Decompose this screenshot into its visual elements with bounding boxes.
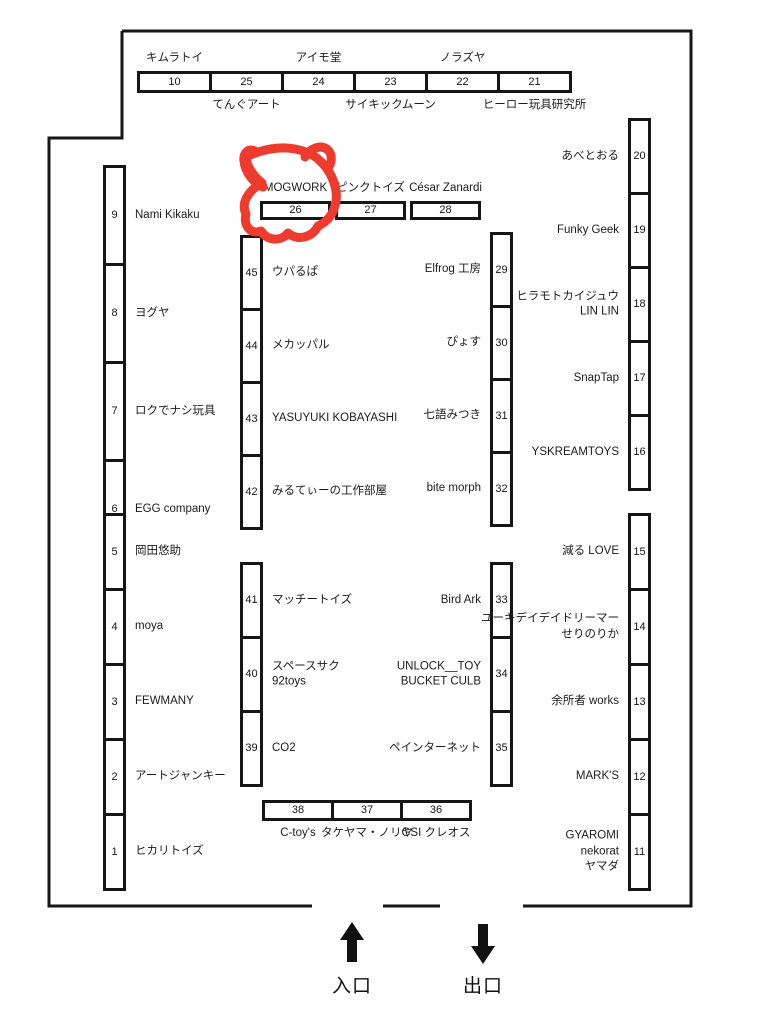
booth-10-box: 10 [137,71,212,93]
booth-13-box: 13 [628,663,651,741]
booth-21-label: ヒーロー玩具研究所 [483,98,587,114]
entrance-arrow-icon [340,922,364,962]
booth-44-box: 44 [240,308,263,384]
booth-cell-22: 22ノラズヤ [425,71,500,93]
booth-12-label: MARK'S [444,769,619,785]
booth-group-top-row: 10キムラトイ25てんぐアート24アイモ堂23サイキックムーン22ノラズヤ21ヒ… [137,71,572,93]
exit-label: 出口 [453,971,513,998]
booth-cell-39: 39CO2 [240,710,263,787]
booth-18-label: ヒラモトカイジュウ LIN LIN [444,289,619,320]
booth-6-label: EGG company [135,502,310,518]
booth-cell-25: 25てんぐアート [209,71,284,93]
booth-25-box: 25 [209,71,284,93]
booth-27-label: ピンクトイズ [336,181,405,197]
booth-18-box: 18 [628,266,651,343]
booth-4-label: moya [135,619,310,635]
booth-43-box: 43 [240,381,263,457]
booth-group-right-bottom: 15減る LOVE14ユーキデイデイドリーマー せりのりか13余所者 works… [628,513,651,891]
booth-1-box: 1 [103,813,126,891]
booth-38-box: 38 [262,800,334,821]
booth-26-label: MOGWORK [264,181,327,197]
booth-28-label: César Zanardi [409,181,482,197]
booth-33-label: Bird Ark [306,593,481,609]
booth-17-label: SnapTap [444,371,619,387]
booth-cell-44: 44メカッパル [240,308,263,384]
booth-40-box: 40 [240,636,263,713]
booth-36-box: 36 [400,800,472,821]
floor-map: 10キムラトイ25てんぐアート24アイモ堂23サイキックムーン22ノラズヤ21ヒ… [0,0,768,1024]
booth-cell-12: 12MARK'S [628,738,651,816]
booth-31-label: 七語みつき [306,408,481,424]
booth-5-label: 岡田悠助 [135,544,310,560]
booth-38-label: C-toy's [280,826,315,842]
booth-8-box: 8 [103,263,126,364]
booth-20-label: あべとおる [444,149,619,165]
booth-cell-17: 17SnapTap [628,340,651,417]
booth-cell-45: 45ウパるぱ [240,235,263,311]
booth-cell-27: 27ピンクトイズ [335,201,406,220]
booth-cell-16: 16YSKREAMTOYS [628,414,651,491]
entrance-label: 入口 [322,971,382,998]
booth-36-label: GSI クレオス [401,826,470,842]
booth-23-label: サイキックムーン [345,98,436,114]
booth-cell-8: 8ヨグヤ [103,263,126,364]
booth-cell-19: 19Funky Geek [628,192,651,269]
booth-25-label: てんぐアート [212,98,280,114]
booth-14-label: ユーキデイデイドリーマー せりのりか [444,611,619,642]
booth-cell-43: 43YASUYUKI KOBAYASHI [240,381,263,457]
booth-cell-28: 28César Zanardi [410,201,481,220]
booth-39-box: 39 [240,710,263,787]
booth-cell-9: 9Nami Kikaku [103,165,126,266]
booth-37-box: 37 [331,800,403,821]
booth-32-label: bite morph [306,481,481,497]
booth-29-label: Elfrog 工房 [306,262,481,278]
booth-cell-7: 7ロクでナシ玩具 [103,361,126,462]
booth-cell-5: 5岡田悠助 [103,513,126,591]
exit-arrow-icon [471,924,495,964]
booth-24-label: アイモ堂 [296,51,341,67]
booth-7-box: 7 [103,361,126,462]
booth-2-box: 2 [103,738,126,816]
booth-cell-4: 4moya [103,588,126,666]
booth-cell-40: 40スペースサク 92toys [240,636,263,713]
booth-10-label: キムラトイ [146,51,203,67]
booth-3-label: FEWMANY [135,694,310,710]
booth-3-box: 3 [103,663,126,741]
booth-cell-10: 10キムラトイ [137,71,212,93]
booth-13-label: 余所者 works [444,694,619,710]
booth-42-box: 42 [240,454,263,530]
booth-23-box: 23 [353,71,428,93]
booth-cell-2: 2アートジャンキー [103,738,126,816]
booth-group-left-bottom: 5岡田悠助4moya3FEWMANY2アートジャンキー1ヒカリトイズ [103,513,126,891]
booth-cell-37: 37タケヤマ・ノリヤ [331,800,403,821]
booth-8-label: ヨグヤ [135,306,310,322]
booth-15-label: 減る LOVE [444,544,619,560]
booth-9-box: 9 [103,165,126,266]
booth-1-label: ヒカリトイズ [135,844,310,860]
booth-14-box: 14 [628,588,651,666]
booth-12-box: 12 [628,738,651,816]
booth-5-box: 5 [103,513,126,591]
booth-cell-41: 41マッチートイズ [240,562,263,639]
booth-4-box: 4 [103,588,126,666]
booth-22-box: 22 [425,71,500,93]
booth-group-left-top: 9Nami Kikaku8ヨグヤ7ロクでナシ玩具6EGG company [103,165,126,560]
booth-45-box: 45 [240,235,263,311]
booth-41-box: 41 [240,562,263,639]
booth-15-box: 15 [628,513,651,591]
booth-cell-21: 21ヒーロー玩具研究所 [497,71,572,93]
booth-19-label: Funky Geek [444,223,619,239]
booth-cell-42: 42みるてぃーの工作部屋 [240,454,263,530]
booth-34-label: UNLOCK__TOY BUCKET CULB [306,659,481,690]
booth-11-box: 11 [628,813,651,891]
booth-cell-18: 18ヒラモトカイジュウ LIN LIN [628,266,651,343]
booth-group-bottom-row: 38C-toy's37タケヤマ・ノリヤ36GSI クレオス [262,800,472,821]
booth-cell-3: 3FEWMANY [103,663,126,741]
booth-cell-24: 24アイモ堂 [281,71,356,93]
booth-cell-36: 36GSI クレオス [400,800,472,821]
booth-32-box: 32 [490,451,513,527]
booth-group-mid-left-bottom: 41マッチートイズ40スペースサク 92toys39CO2 [240,562,263,787]
booth-cell-38: 38C-toy's [262,800,334,821]
booth-21-box: 21 [497,71,572,93]
booth-group-mid-right-bottom: 33Bird Ark34UNLOCK__TOY BUCKET CULB35ペイン… [490,562,513,787]
booth-cell-15: 15減る LOVE [628,513,651,591]
booth-cell-23: 23サイキックムーン [353,71,428,93]
booth-2-label: アートジャンキー [135,769,310,785]
booth-31-box: 31 [490,378,513,454]
booth-cell-13: 13余所者 works [628,663,651,741]
booth-27-box: 27 [335,201,406,220]
booth-cell-1: 1ヒカリトイズ [103,813,126,891]
booth-37-label: タケヤマ・ノリヤ [321,826,413,842]
booth-22-label: ノラズヤ [440,51,486,67]
booth-group-mid-left-top: 45ウパるぱ44メカッパル43YASUYUKI KOBAYASHI42みるてぃー… [240,235,263,530]
booth-cell-31: 31七語みつき [490,378,513,454]
booth-24-box: 24 [281,71,356,93]
booth-20-box: 20 [628,118,651,195]
booth-17-box: 17 [628,340,651,417]
booth-cell-14: 14ユーキデイデイドリーマー せりのりか [628,588,651,666]
booth-cell-11: 11GYAROMI nekorat ヤマダ [628,813,651,891]
booth-28-box: 28 [410,201,481,220]
booth-9-label: Nami Kikaku [135,208,310,224]
booth-35-label: ペインターネット [306,741,481,757]
booth-cell-32: 32bite morph [490,451,513,527]
booth-16-box: 16 [628,414,651,491]
booth-19-box: 19 [628,192,651,269]
booth-group-right-top: 20あべとおる19Funky Geek18ヒラモトカイジュウ LIN LIN17… [628,118,651,491]
booth-16-label: YSKREAMTOYS [444,445,619,461]
booth-cell-20: 20あべとおる [628,118,651,195]
booth-30-label: ぴょす [306,335,481,351]
